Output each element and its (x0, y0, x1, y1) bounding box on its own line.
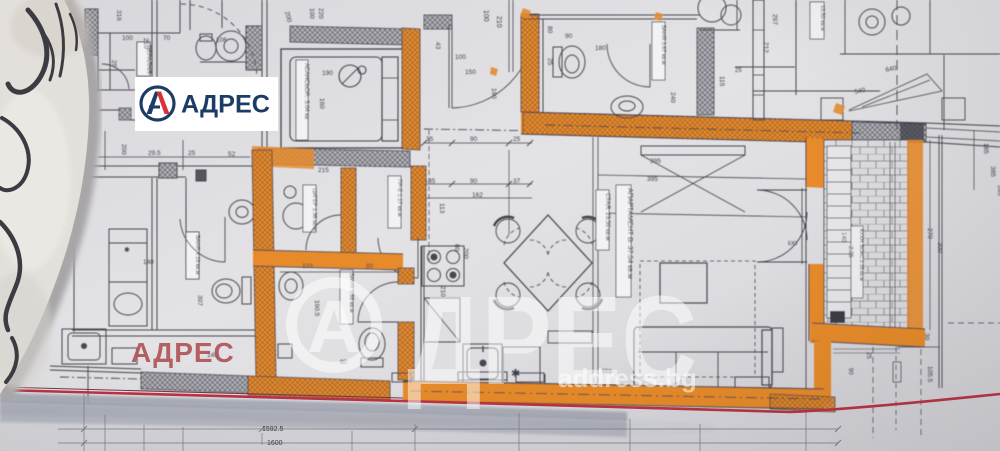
svg-text:АДРЕС: АДРЕС (131, 337, 235, 368)
svg-text:АДРЕС: АДРЕС (181, 91, 270, 119)
svg-text:А: А (307, 285, 360, 368)
svg-text:address.bg: address.bg (558, 363, 697, 393)
